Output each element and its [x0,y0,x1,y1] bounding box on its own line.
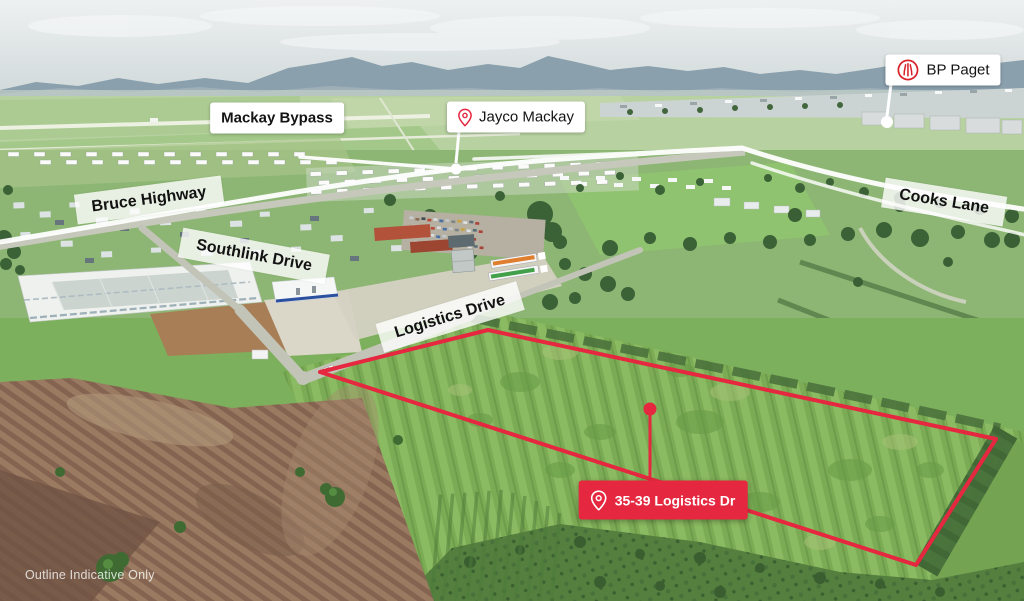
site-address-label: 35-39 Logistics Dr [615,492,736,508]
site-address-badge: 35-39 Logistics Dr [579,481,748,520]
poi-label-bp-paget: BP Paget [885,55,1000,86]
location-pin-icon [591,490,607,510]
location-pin-icon [458,108,472,126]
bp-logo-icon [896,59,919,82]
aerial-marketing-image: Mackay Bypass Jayco Mackay BP Paget Bruc… [0,0,1024,601]
jayco-label: Jayco Mackay [479,109,574,126]
jayco-marker-dot [451,164,462,175]
road-label-mackay-bypass: Mackay Bypass [210,103,344,134]
disclaimer-text: Outline Indicative Only [25,568,155,582]
bp-marker-dot [881,116,893,128]
site-marker-dot [644,403,657,416]
poi-label-jayco-mackay: Jayco Mackay [447,102,585,133]
bp-label: BP Paget [926,62,989,79]
mackay-bypass-label: Mackay Bypass [221,110,333,127]
